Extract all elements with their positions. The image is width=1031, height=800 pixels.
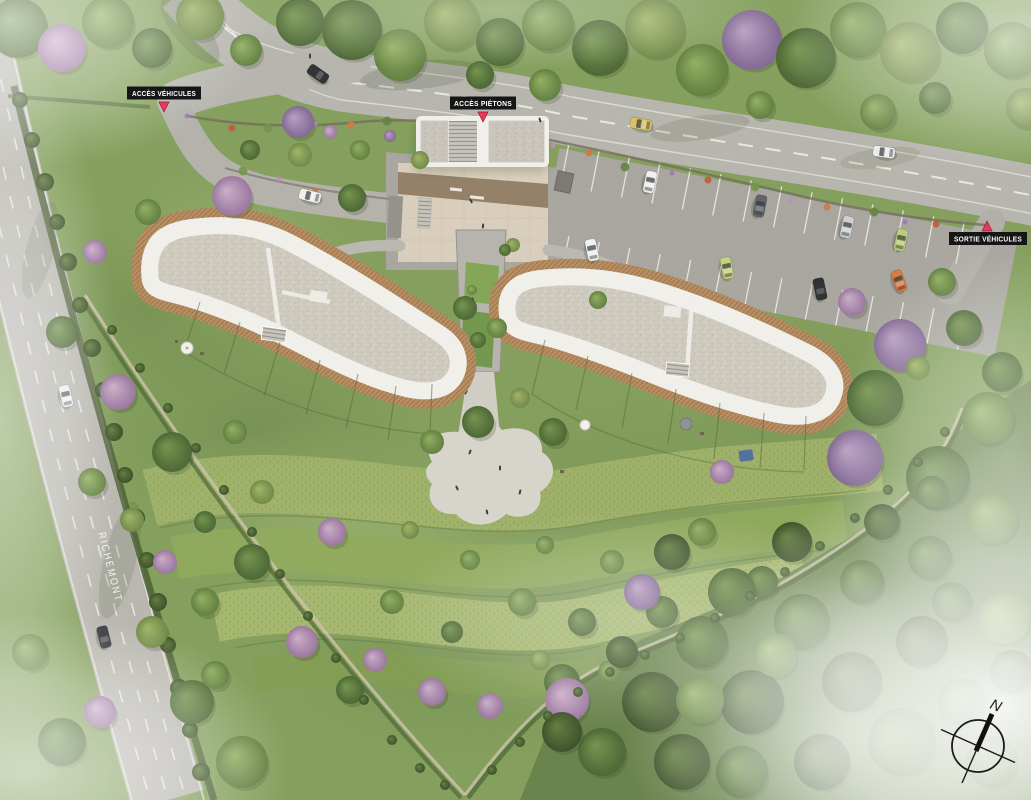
site-plan-rendering: RICHEMONT ACCÈS VÉHICULES ACCÈS PIÉTONS …: [0, 0, 1031, 800]
fog-overlays: [0, 0, 1031, 800]
site-plan-canvas: RICHEMONT ACCÈS VÉHICULES ACCÈS PIÉTONS …: [0, 0, 1031, 800]
haze-wash: [0, 0, 1031, 800]
label-text: SORTIE VÉHICULES: [954, 235, 1022, 244]
label-text: ACCÈS PIÉTONS: [454, 99, 512, 108]
label-text: ACCÈS VÉHICULES: [132, 89, 196, 98]
